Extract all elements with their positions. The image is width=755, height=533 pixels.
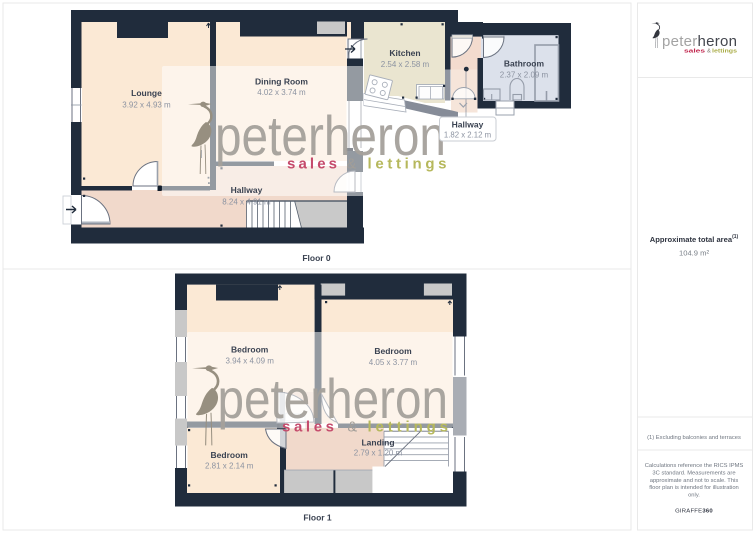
svg-text:2.54 x 2.58 m: 2.54 x 2.58 m [381,60,430,69]
svg-text:sales: sales [287,156,337,173]
svg-text:Dining Room: Dining Room [255,77,308,87]
svg-text:approximate and not to scale.: approximate and not to scale. This [650,478,739,484]
svg-text:3C standard. Measurements are: 3C standard. Measurements are [652,470,735,476]
svg-text:Lounge: Lounge [131,88,162,98]
svg-text:Hallway: Hallway [231,185,263,195]
svg-text:sales: sales [282,419,334,436]
svg-text:Bathroom: Bathroom [504,59,545,69]
svg-text:Floor 1: Floor 1 [303,513,332,523]
svg-text:Kitchen: Kitchen [389,48,420,58]
svg-text:Bedroom: Bedroom [374,346,412,356]
svg-text:3.94 x 4.09 m: 3.94 x 4.09 m [225,357,274,366]
svg-text:104.9 m²: 104.9 m² [679,249,709,258]
svg-text:Floor 0: Floor 0 [302,253,331,263]
svg-text:Landing: Landing [361,438,394,448]
svg-text:4.02 x 3.74 m: 4.02 x 3.74 m [257,88,306,97]
svg-text:GIRAFFE360: GIRAFFE360 [675,509,713,515]
svg-text:&: & [348,420,358,436]
svg-text:(1) Excluding balconies and te: (1) Excluding balconies and terraces [647,435,741,441]
svg-text:2.81 x 2.14 m: 2.81 x 2.14 m [205,462,254,471]
svg-text:Bedroom: Bedroom [211,450,249,460]
svg-text:only.: only. [688,493,700,499]
svg-text:Bedroom: Bedroom [231,345,269,355]
svg-text:lettings: lettings [712,49,737,55]
svg-text:sales: sales [684,49,705,55]
svg-text:Calculations reference the RIC: Calculations reference the RICS IPMS [645,463,744,469]
svg-text:&: & [707,49,711,55]
svg-text:4.05 x 3.77 m: 4.05 x 3.77 m [369,358,418,367]
svg-text:2.79 x 1.20 m: 2.79 x 1.20 m [354,449,403,458]
svg-text:peterheron: peterheron [662,33,737,50]
svg-text:3.92 x 4.93 m: 3.92 x 4.93 m [122,101,171,110]
svg-text:&: & [347,157,357,173]
svg-text:floor plan is intended for ill: floor plan is intended for illustration [649,485,739,491]
svg-text:1.82 x 2.12 m: 1.82 x 2.12 m [444,131,491,140]
svg-text:Hallway: Hallway [452,120,484,130]
svg-text:Approximate total area(1): Approximate total area(1) [650,234,739,244]
svg-text:2.37 x 2.09 m: 2.37 x 2.09 m [500,71,549,80]
svg-text:8.24 x 4.91 m: 8.24 x 4.91 m [222,198,271,207]
